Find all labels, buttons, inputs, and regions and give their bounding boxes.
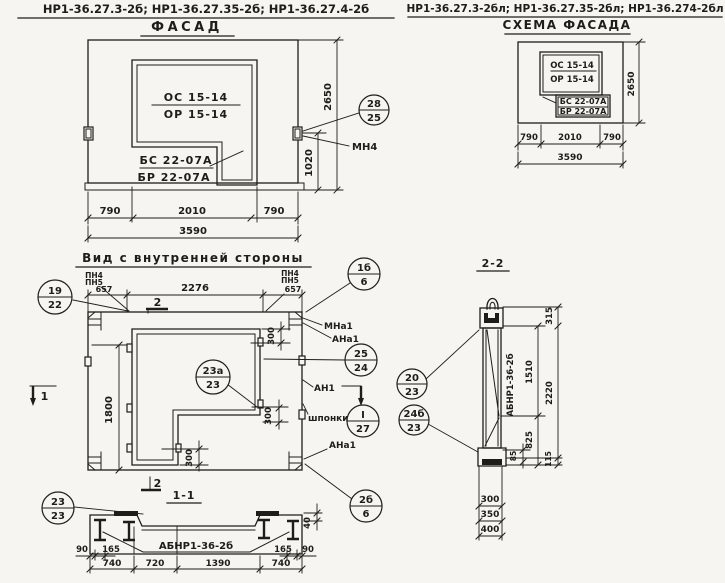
scheme-mark-os: ОС 15-14 xyxy=(550,61,594,71)
inner-view: Вид с внутренней стороны 657 2276 65 xyxy=(30,251,382,522)
facade-plate-left xyxy=(84,127,93,140)
section-1-1-title: 1-1 xyxy=(173,489,196,502)
svg-text:23: 23 xyxy=(51,511,65,522)
svg-text:27: 27 xyxy=(356,424,370,435)
section-1-1: 1-1 23 23 40 xyxy=(42,489,322,573)
bearing-pad-right xyxy=(256,511,279,516)
svg-text:300: 300 xyxy=(185,449,195,467)
facade-label-mn4: МН4 xyxy=(352,142,377,153)
engineering-drawing-sheet: НР1-36.27.3-2б; НР1-36.27.35-2б; НР1-36.… xyxy=(0,0,725,583)
svg-text:2: 2 xyxy=(154,477,163,490)
scheme-title: СХЕМА ФАСАДА xyxy=(503,18,632,32)
section-mark-1-left: 1 xyxy=(30,386,56,406)
callout-23a-23: 23а 23 xyxy=(196,360,230,394)
inner-dim-300-bot: 300 xyxy=(162,441,208,471)
svg-text:23: 23 xyxy=(51,497,65,508)
s11-dim-740r: 740 xyxy=(272,559,291,569)
svg-text:2: 2 xyxy=(154,296,163,309)
s11-label: АБНР1-36-2б xyxy=(159,540,233,552)
facade-plate-right xyxy=(293,127,302,140)
svg-text:25: 25 xyxy=(354,349,368,360)
facade-dim-2010: 2010 xyxy=(178,206,206,217)
facade-dim-2650: 2650 xyxy=(323,83,334,111)
scheme-dim-2010: 2010 xyxy=(558,133,582,143)
svg-text:I: I xyxy=(361,410,365,421)
inner-label-shponki: шпонки xyxy=(308,414,349,424)
inner-label-mna1: МНа1 xyxy=(324,322,353,332)
svg-text:25: 25 xyxy=(367,113,381,124)
svg-text:28: 28 xyxy=(367,99,381,110)
svg-text:300: 300 xyxy=(267,327,277,345)
s22-dim-400: 400 xyxy=(481,525,500,535)
drawing-canvas: НР1-36.27.3-2б; НР1-36.27.35-2б; НР1-36.… xyxy=(0,0,725,583)
inner-label-pn5-right: ПН5 xyxy=(281,276,299,285)
facade-dim-3590: 3590 xyxy=(179,226,207,237)
scheme-dim-3590: 3590 xyxy=(557,153,582,163)
callout-25-24: 25 24 xyxy=(345,344,377,376)
s11-dim-1390: 1390 xyxy=(205,559,230,569)
s22-dim-300: 300 xyxy=(481,495,500,505)
facade-mark-bs: БС 22-07А xyxy=(140,154,213,167)
facade-view: ФАСАД ОС 15-14 ОР 15-14 БС 22-07А БР 22-… xyxy=(84,20,389,242)
s11-dim-90l: 90 xyxy=(76,545,88,555)
inner-dim-657r: 657 xyxy=(285,285,302,294)
s22-dim-115: 115 xyxy=(544,451,553,467)
callout-20-23: 20 23 xyxy=(397,369,427,399)
scheme-dim-790r: 790 xyxy=(603,133,621,143)
section-2-2: 2-2 АБНР1-36-2б 315 1510 2220 825 115 8 xyxy=(397,257,562,540)
callout-24b-23: 24б 23 xyxy=(399,405,429,435)
facade-scheme: СХЕМА ФАСАДА ОС 15-14 ОР 15-14 БС 22-07А… xyxy=(503,18,645,168)
inner-dim-2276: 2276 xyxy=(181,283,209,294)
svg-text:19: 19 xyxy=(48,286,62,297)
facade-dim-1020: 1020 xyxy=(304,149,315,177)
callout-19-22: 19 22 xyxy=(38,280,72,314)
svg-text:24: 24 xyxy=(354,363,368,374)
header-left: НР1-36.27.3-2б; НР1-36.27.35-2б; НР1-36.… xyxy=(18,2,394,18)
svg-text:23: 23 xyxy=(206,380,220,391)
svg-text:23: 23 xyxy=(407,423,421,434)
svg-text:23: 23 xyxy=(405,387,419,398)
s22-dim-85: 85 xyxy=(509,451,518,461)
s11-dim-740l: 740 xyxy=(103,559,122,569)
callout-I-27: I 27 xyxy=(347,405,379,437)
s22-dim-2220: 2220 xyxy=(545,381,555,405)
header-right-text: НР1-36.27.3-2бл; НР1-36.27.35-2бл; НР1-3… xyxy=(406,3,723,15)
s22-label: АБНР1-36-2б xyxy=(505,353,516,416)
header-right: НР1-36.27.3-2бл; НР1-36.27.35-2бл; НР1-3… xyxy=(406,3,723,17)
scheme-mark-or: ОР 15-14 xyxy=(550,75,594,85)
svg-text:300: 300 xyxy=(264,407,274,425)
header-left-text: НР1-36.27.3-2б; НР1-36.27.35-2б; НР1-36.… xyxy=(43,2,369,16)
callout-23-23: 23 23 xyxy=(42,492,74,524)
inner-dim-1800: 1800 xyxy=(104,396,115,424)
s11-dim-165r: 165 xyxy=(274,545,292,555)
s22-dim-1510: 1510 xyxy=(525,360,535,384)
svg-text:6: 6 xyxy=(363,509,370,520)
s11-dim-165l: 165 xyxy=(102,545,120,555)
scheme-dim-2650: 2650 xyxy=(627,71,637,96)
facade-dim-790r: 790 xyxy=(264,206,285,217)
svg-text:23а: 23а xyxy=(203,366,224,377)
scheme-mark-bs: БС 22-07А xyxy=(560,97,607,106)
svg-text:20: 20 xyxy=(405,373,419,384)
svg-text:22: 22 xyxy=(48,300,62,311)
anchor-tabs xyxy=(85,338,305,452)
callout-2b-6: 2б 6 xyxy=(350,490,382,522)
s22-dim-315: 315 xyxy=(545,307,555,325)
s22-dim-825: 825 xyxy=(525,431,535,449)
s11-dim-720: 720 xyxy=(146,559,165,569)
inner-label-ana1: АНа1 xyxy=(332,335,359,345)
svg-text:1б: 1б xyxy=(357,262,371,274)
svg-text:2б: 2б xyxy=(359,494,373,506)
section-mark-2-bottom: 2 xyxy=(141,477,162,490)
s11-dim-40: 40 xyxy=(303,517,313,529)
callout-28-25: 28 25 xyxy=(359,95,389,125)
svg-text:24б: 24б xyxy=(404,408,425,420)
inner-dim-300-top: 300 xyxy=(251,322,290,350)
section-2-2-title: 2-2 xyxy=(482,257,505,270)
s11-dim-90r: 90 xyxy=(302,545,314,555)
facade-mark-os: ОС 15-14 xyxy=(164,91,228,104)
inner-label-an1: АН1 xyxy=(314,384,335,394)
facade-mark-br: БР 22-07А xyxy=(138,171,211,184)
s22-dim-350: 350 xyxy=(481,510,500,520)
inner-label-ana1-bottom: АНа1 xyxy=(329,441,356,451)
scheme-dim-790l: 790 xyxy=(520,133,538,143)
facade-mark-or: ОР 15-14 xyxy=(164,108,228,121)
inner-label-pn5-left: ПН5 xyxy=(85,278,103,287)
callout-1b-6: 1б 6 xyxy=(348,258,380,290)
scheme-mark-br: БР 22-07А xyxy=(560,107,607,116)
svg-text:6: 6 xyxy=(361,277,368,288)
facade-title: ФАСАД xyxy=(151,20,223,35)
svg-text:1: 1 xyxy=(41,390,50,403)
section-mark-1-right: АН1 xyxy=(303,380,364,406)
facade-dim-790l: 790 xyxy=(100,206,121,217)
inner-title: Вид с внутренней стороны xyxy=(82,251,304,265)
section-mark-2-top: 2 xyxy=(146,296,168,313)
